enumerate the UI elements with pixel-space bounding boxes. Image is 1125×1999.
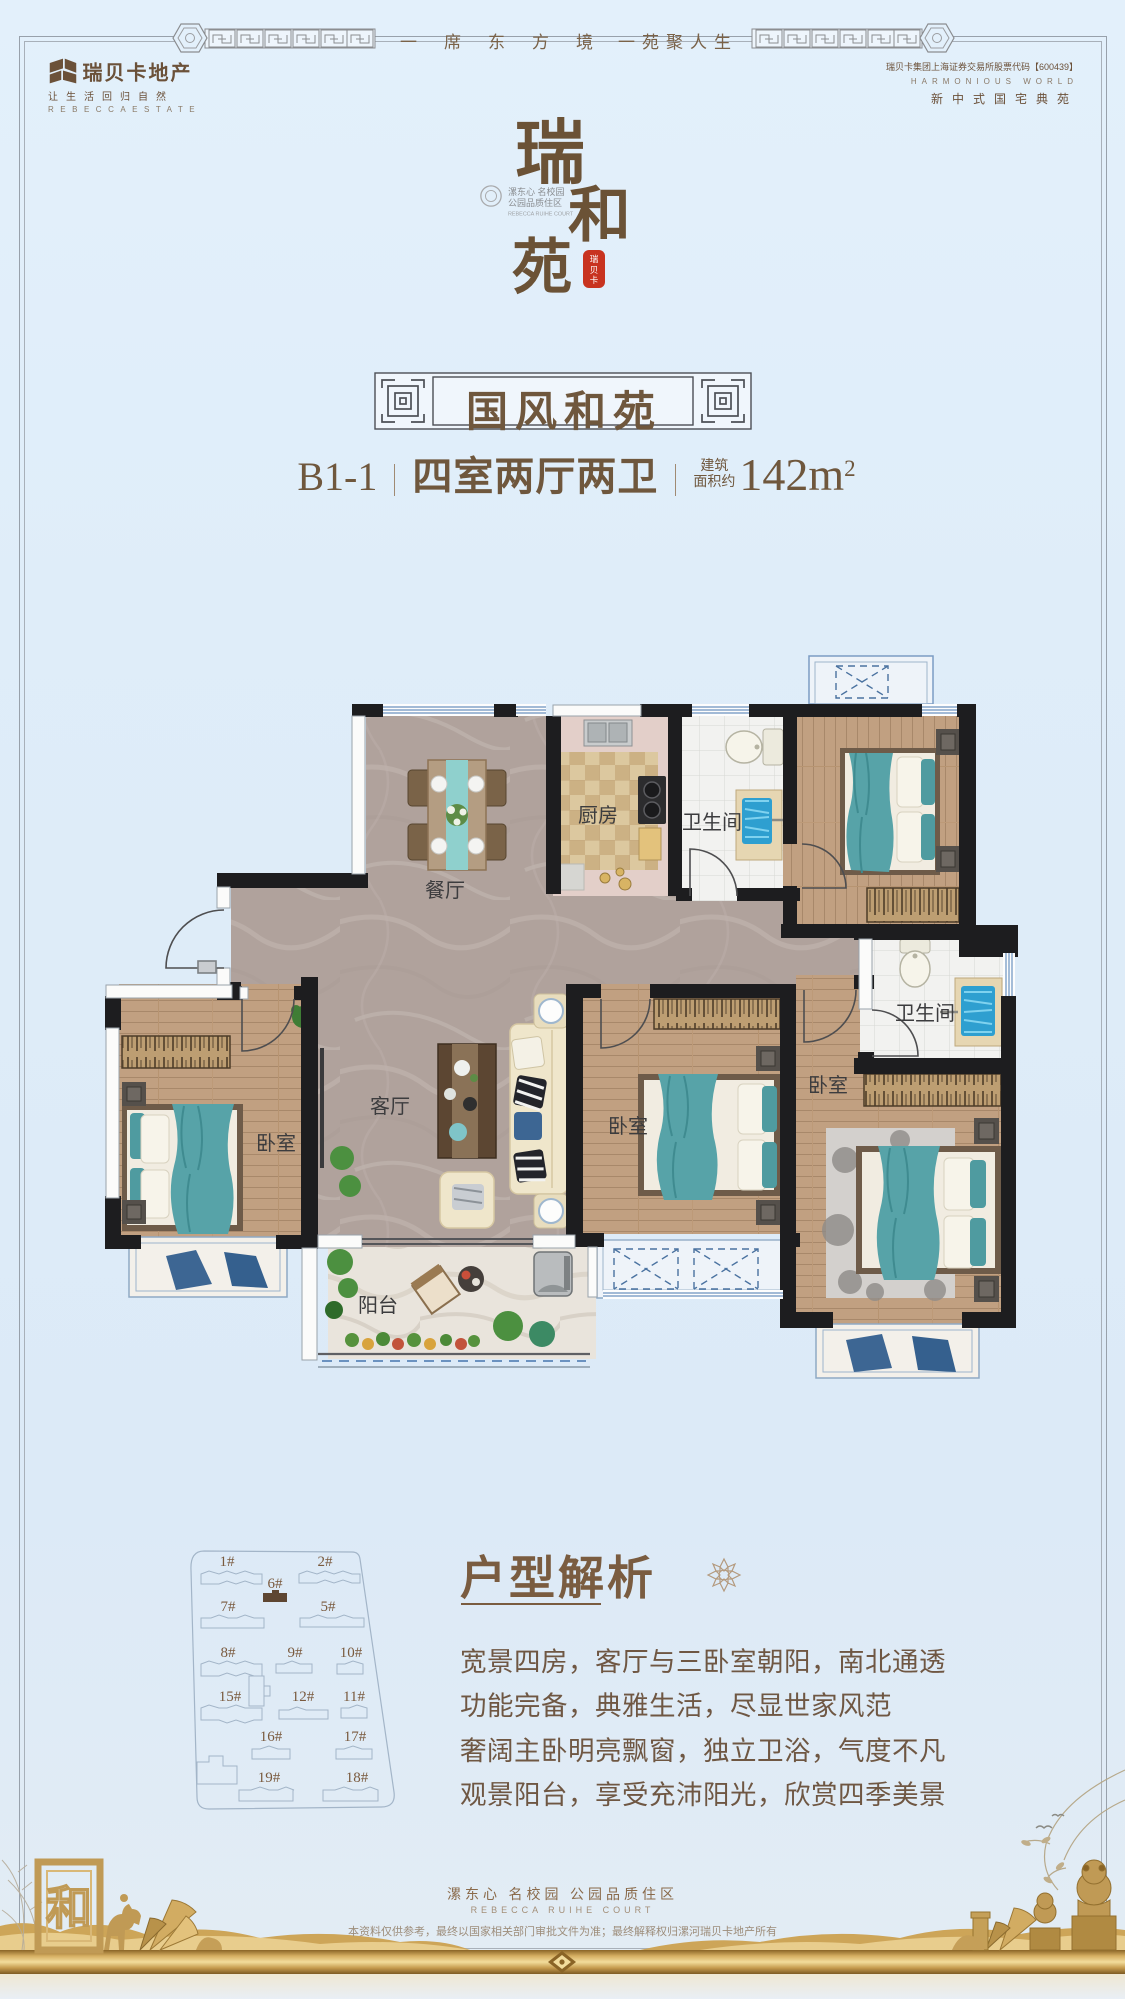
svg-text:8#: 8# [221, 1645, 237, 1661]
svg-text:卧室: 卧室 [808, 1074, 848, 1097]
svg-text:卧室: 卧室 [608, 1115, 648, 1138]
svg-text:11#: 11# [343, 1689, 365, 1705]
svg-text:9#: 9# [288, 1645, 304, 1661]
svg-text:阳台: 阳台 [358, 1294, 398, 1317]
svg-text:2#: 2# [318, 1554, 334, 1570]
svg-text:12#: 12# [292, 1689, 315, 1705]
svg-text:卧室: 卧室 [256, 1132, 296, 1155]
svg-text:1#: 1# [220, 1554, 236, 1570]
svg-text:5#: 5# [321, 1599, 337, 1615]
svg-text:卫生间: 卫生间 [895, 1002, 955, 1025]
svg-text:6#: 6# [268, 1576, 284, 1592]
svg-text:客厅: 客厅 [370, 1095, 410, 1118]
svg-text:卫生间: 卫生间 [682, 811, 742, 834]
svg-text:7#: 7# [221, 1599, 237, 1615]
svg-text:厨房: 厨房 [578, 804, 618, 827]
svg-text:餐厅: 餐厅 [425, 879, 465, 902]
svg-text:15#: 15# [219, 1689, 242, 1705]
svg-text:10#: 10# [340, 1645, 363, 1661]
